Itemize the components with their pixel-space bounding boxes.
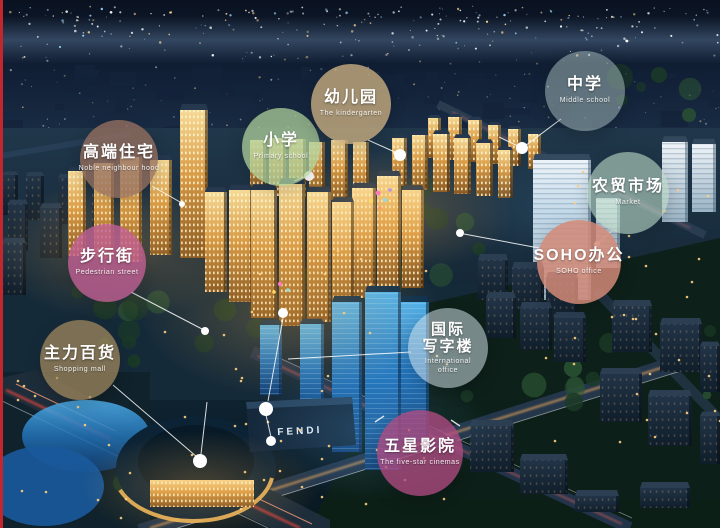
masterplan-rendering: FENDI: [0, 0, 720, 528]
night-aerial-scene: FENDI: [0, 0, 720, 528]
left-frame-line: [0, 0, 3, 528]
